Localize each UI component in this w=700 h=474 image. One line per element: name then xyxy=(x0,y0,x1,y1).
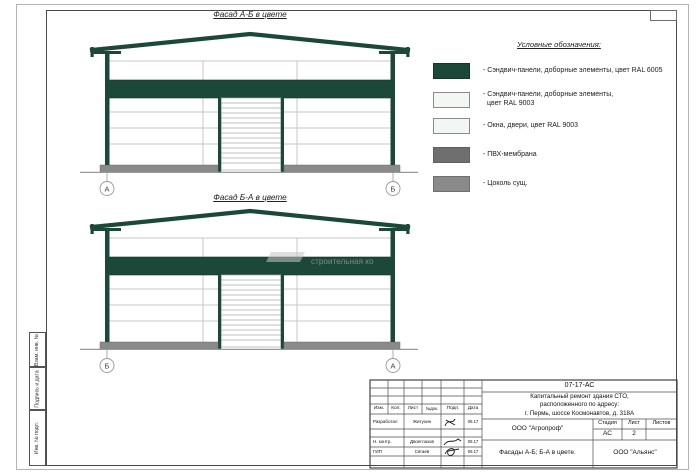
facade-ba-title: Фасад Б-А в цвете xyxy=(55,193,445,202)
accent-band xyxy=(109,80,391,98)
signature-razrabotal xyxy=(445,419,455,426)
sheet-value: 2 xyxy=(622,429,646,440)
signature-gip xyxy=(445,449,459,456)
axis-marker-a: А xyxy=(100,172,114,196)
facade-ab-title: Фасад А-Б в цвете xyxy=(55,10,445,19)
signer-date: 06.17 xyxy=(464,447,482,456)
signature-nkontr xyxy=(444,439,461,445)
side-stamp-vzam: Взам. инв. № xyxy=(29,332,46,367)
contractor-org: ООО "Альянс" xyxy=(593,440,677,466)
sheets-header: Листов xyxy=(646,419,677,429)
axis-marker-b: Б xyxy=(386,172,400,196)
signer-role: Н. контр. xyxy=(371,437,404,447)
signer-role: Разработал xyxy=(371,414,404,429)
svg-text:Б: Б xyxy=(105,361,110,370)
legend-item-ral6005: - Сэндвич-панели, доборные элементы, цве… xyxy=(433,63,663,79)
doc-code: 07-17-АС xyxy=(482,380,677,392)
svg-text:Б: Б xyxy=(391,184,396,193)
roller-door xyxy=(218,98,284,172)
sheet-header: Лист xyxy=(622,419,646,429)
legend: Условные обозначения: - Сэндвич-панели, … xyxy=(430,40,688,200)
axis-marker-a: А xyxy=(386,349,400,373)
legend-swatch-plinth xyxy=(433,176,470,192)
legend-item-plinth: - Цоколь сущ. xyxy=(433,176,528,192)
sheets-value xyxy=(646,429,677,440)
legend-item-windows: - Окна, двери, цвет RAL 9003 xyxy=(433,118,578,134)
rev-header-podp: Подп. xyxy=(442,404,464,414)
project-name: Капитальный ремонт здания СТО, расположе… xyxy=(482,392,677,419)
stage-value: АС xyxy=(593,429,622,440)
signer-date: 06.17 xyxy=(464,437,482,447)
roller-door xyxy=(218,275,284,349)
legend-swatch-ral6005 xyxy=(433,63,470,79)
drawing-sheet: Фасад А-Б в цвете xyxy=(0,0,700,474)
legend-item-ral9003: - Сэндвич-панели, доборные элементы, цве… xyxy=(433,91,613,109)
sheet-title: Фасады А-Б; Б-А в цвете. xyxy=(482,440,593,466)
facade-ba-drawing: строительная ко xyxy=(55,205,420,390)
svg-text:А: А xyxy=(390,361,395,370)
axis-marker-b: Б xyxy=(100,349,114,373)
side-stamp-podpis: Подпись и дата xyxy=(29,367,46,410)
signer-name: Двоеглазов xyxy=(404,437,440,447)
signer-name: Житухин xyxy=(404,414,440,429)
rev-header-izm: Изм. xyxy=(370,404,388,414)
signer-role: ГИП xyxy=(371,447,404,456)
rev-header-ndok: №док. xyxy=(422,404,442,414)
facade-ab-drawing: А Б xyxy=(55,28,420,213)
rev-header-kol: Кол. xyxy=(388,404,404,414)
signer-name: Сягаев xyxy=(404,447,440,456)
top-right-doc-box xyxy=(650,10,677,21)
stage-header: Стадия xyxy=(593,419,622,429)
side-stamp-inv: Инв. № подл. xyxy=(29,410,46,466)
legend-swatch-ral9003 xyxy=(433,92,470,108)
legend-swatch-windows xyxy=(433,118,470,134)
design-org: ООО "Агропроф" xyxy=(482,419,593,440)
legend-item-pvc-membrane: - ПВХ-мембрана xyxy=(433,147,537,163)
svg-text:строительная ко: строительная ко xyxy=(311,257,374,266)
svg-text:А: А xyxy=(104,184,109,193)
rev-header-data: Дата xyxy=(464,404,482,414)
legend-title: Условные обозначения: xyxy=(430,40,688,49)
legend-swatch-pvc-membrane xyxy=(433,147,470,163)
signer-date: 06.17 xyxy=(464,414,482,429)
rev-header-list: Лист xyxy=(404,404,422,414)
